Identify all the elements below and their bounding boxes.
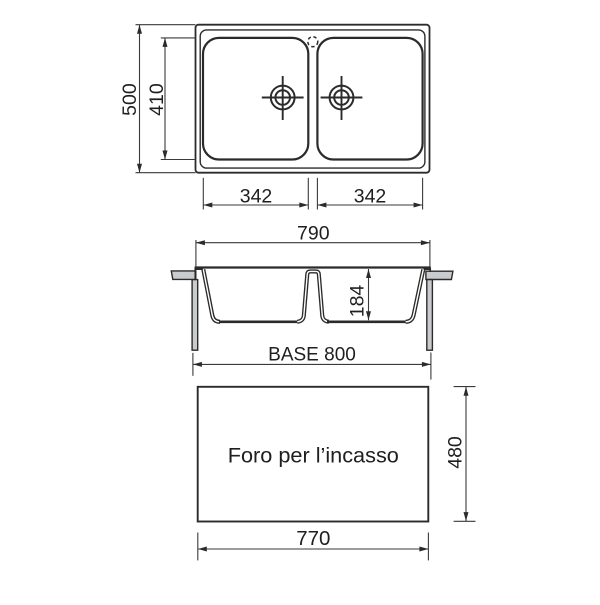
svg-text:Foro per l’incasso: Foro per l’incasso [228, 443, 399, 468]
svg-text:500: 500 [119, 83, 141, 116]
svg-text:BASE 800: BASE 800 [268, 344, 356, 365]
svg-text:770: 770 [296, 527, 330, 550]
svg-text:410: 410 [146, 83, 168, 116]
svg-text:342: 342 [240, 185, 273, 207]
svg-text:790: 790 [297, 223, 330, 245]
svg-text:480: 480 [444, 436, 466, 469]
svg-text:342: 342 [354, 185, 387, 207]
svg-text:184: 184 [347, 285, 369, 318]
